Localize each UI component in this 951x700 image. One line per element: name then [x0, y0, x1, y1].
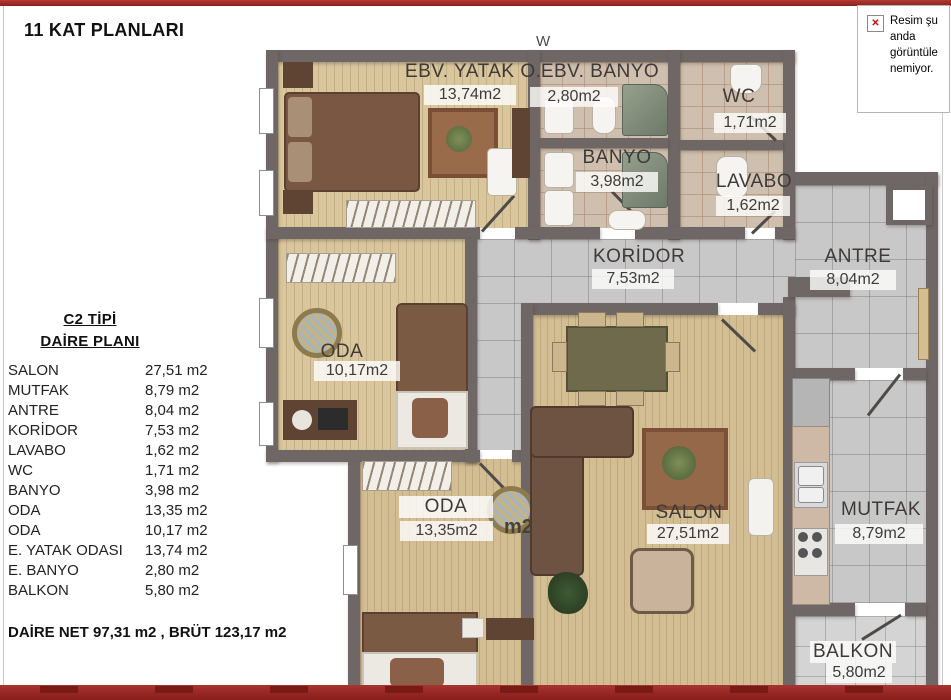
room-area-mutfak: 8,79m2	[835, 524, 923, 544]
dining-table	[566, 326, 668, 392]
window	[259, 402, 274, 446]
room-label-balkon: BALKON	[810, 641, 896, 663]
window	[259, 298, 274, 348]
bottom-red-bar	[0, 685, 951, 700]
broken-image-icon: ✕	[867, 15, 884, 32]
table-row: SALON27,51 m2	[8, 362, 258, 382]
room-label-ebv-yatak: EBV. YATAK O.	[405, 61, 535, 83]
room-name: ODA	[8, 522, 41, 539]
plan-name-heading: DAİRE PLANI	[0, 333, 180, 350]
room-area: 1,62 m2	[145, 442, 199, 459]
room-name: KORİDOR	[8, 422, 78, 439]
sink-basin	[798, 487, 824, 503]
room-area-lavabo: 1,62m2	[716, 196, 790, 216]
entry-door-leaf	[918, 288, 929, 360]
entrance-door	[893, 190, 925, 220]
net-brut-totals: DAİRE NET 97,31 m2 , BRÜT 123,17 m2	[8, 624, 286, 641]
room-label-salon: SALON	[652, 502, 726, 524]
bed-pillow	[288, 142, 312, 182]
armchair	[630, 548, 694, 614]
room-area: 7,53 m2	[145, 422, 199, 439]
cropped-top-label: W	[536, 33, 552, 50]
wall	[795, 172, 938, 185]
room-area: 13,74 m2	[145, 542, 208, 559]
nightstand	[283, 190, 313, 214]
radiator	[286, 253, 396, 283]
burner-icon	[798, 532, 808, 542]
broken-image-text: Resim şu anda görüntüle nemiyor.	[890, 13, 946, 77]
room-label-koridor: KORİDOR	[593, 246, 683, 268]
chair	[616, 391, 644, 406]
room-name: SALON	[8, 362, 59, 379]
table-row: LAVABO1,62 m2	[8, 442, 258, 462]
plan-type-heading: C2 TİPİ	[0, 311, 180, 328]
room-area-ebv-banyo: 2,80m2	[530, 87, 618, 107]
wall	[903, 368, 926, 380]
radiator	[748, 478, 774, 536]
room-area-wc: 1,71m2	[714, 113, 786, 133]
page-title: 11 KAT PLANLARI	[24, 20, 184, 41]
single-bed	[362, 612, 478, 656]
room-name: LAVABO	[8, 442, 66, 459]
chair	[462, 618, 484, 638]
room-name: ANTRE	[8, 402, 59, 419]
room-area-antre: 8,04m2	[810, 270, 896, 290]
room-label-lavabo: LAVABO	[714, 171, 794, 193]
room-area-banyo: 3,98m2	[576, 172, 658, 192]
wardrobe	[512, 108, 530, 178]
room-area-balkon: 5,80m2	[826, 663, 892, 683]
broken-image-placeholder: ✕ Resim şu anda görüntüle nemiyor.	[857, 5, 950, 113]
kitchen-counter	[792, 426, 830, 605]
room-area: 8,79 m2	[145, 382, 199, 399]
room-name: BALKON	[8, 582, 69, 599]
room-area: 5,80 m2	[145, 582, 199, 599]
radiator	[362, 461, 452, 491]
table-row: E. YATAK ODASI13,74 m2	[8, 542, 258, 562]
bed-pillow	[390, 658, 444, 687]
room-area: 10,17 m2	[145, 522, 208, 539]
wall	[668, 50, 680, 240]
brick-pattern	[40, 686, 951, 693]
wall	[926, 172, 938, 687]
room-area-ebv-yatak: 13,74m2	[424, 85, 516, 105]
shower	[622, 84, 668, 136]
wall	[680, 140, 783, 150]
monitor	[318, 408, 348, 430]
chair	[292, 410, 312, 430]
bed-pillow	[288, 97, 312, 137]
radiator	[346, 200, 476, 228]
room-area: 3,98 m2	[145, 482, 199, 499]
room-label-banyo: BANYO	[578, 147, 656, 169]
desk	[486, 618, 534, 640]
table-row: ODA13,35 m2	[8, 502, 258, 522]
room-name: ODA	[8, 502, 41, 519]
toilet	[608, 210, 646, 230]
chair	[616, 312, 644, 327]
table-row: WC1,71 m2	[8, 462, 258, 482]
room-name: BANYO	[8, 482, 61, 499]
sink	[544, 152, 574, 188]
room-area: 2,80 m2	[145, 562, 199, 579]
room-area: 1,71 m2	[145, 462, 199, 479]
chair	[665, 342, 680, 372]
room-area: 13,35 m2	[145, 502, 208, 519]
plant-icon	[446, 126, 472, 152]
room-area-salon: 27,51m2	[647, 524, 729, 544]
chair	[578, 391, 606, 406]
room-label-mutfak: MUTFAK	[838, 499, 924, 521]
room-name: MUTFAK	[8, 382, 69, 399]
burner-icon	[812, 532, 822, 542]
room-area-oda2: 13,35m2	[400, 521, 493, 541]
stray-m2-label: m2	[504, 516, 533, 539]
washer	[544, 190, 574, 226]
table-row: BANYO3,98 m2	[8, 482, 258, 502]
bed-pillow	[412, 398, 448, 438]
room-area-oda1: 10,17m2	[314, 361, 400, 381]
room-name: WC	[8, 462, 33, 479]
room-area: 27,51 m2	[145, 362, 208, 379]
window	[259, 88, 274, 134]
corridor-extension	[477, 303, 521, 450]
burner-icon	[812, 548, 822, 558]
fridge	[792, 378, 830, 428]
wall	[515, 227, 600, 239]
room-label-antre: ANTRE	[822, 246, 894, 268]
wall	[775, 227, 795, 239]
chair	[578, 312, 606, 327]
room-area: 8,04 m2	[145, 402, 199, 419]
wall	[266, 227, 480, 239]
sofa	[530, 406, 634, 458]
plant-icon	[662, 446, 696, 480]
table-row: E. BANYO2,80 m2	[8, 562, 258, 582]
window	[259, 170, 274, 216]
room-label-oda2: ODA	[399, 496, 493, 518]
room-name: E. BANYO	[8, 562, 79, 579]
wall	[905, 603, 926, 616]
room-name: E. YATAK ODASI	[8, 542, 123, 559]
room-label-ebv-banyo: EBV. BANYO	[540, 61, 660, 83]
table-row: MUTFAK8,79 m2	[8, 382, 258, 402]
table-row: KORİDOR7,53 m2	[8, 422, 258, 442]
burner-icon	[798, 548, 808, 558]
table-row: ANTRE8,04 m2	[8, 402, 258, 422]
room-area-koridor: 7,53m2	[592, 269, 674, 289]
sink-basin	[798, 466, 824, 486]
top-red-bar	[0, 0, 951, 6]
wall	[465, 450, 480, 462]
room-label-wc: WC	[718, 86, 760, 108]
plant-icon	[548, 572, 588, 614]
window	[343, 545, 358, 595]
chair	[552, 342, 567, 372]
table-row: BALKON5,80 m2	[8, 582, 258, 602]
nightstand	[283, 62, 313, 88]
room-label-oda1: ODA	[318, 341, 366, 363]
single-bed	[396, 303, 468, 395]
wall	[635, 227, 745, 239]
table-row: ODA10,17 m2	[8, 522, 258, 542]
